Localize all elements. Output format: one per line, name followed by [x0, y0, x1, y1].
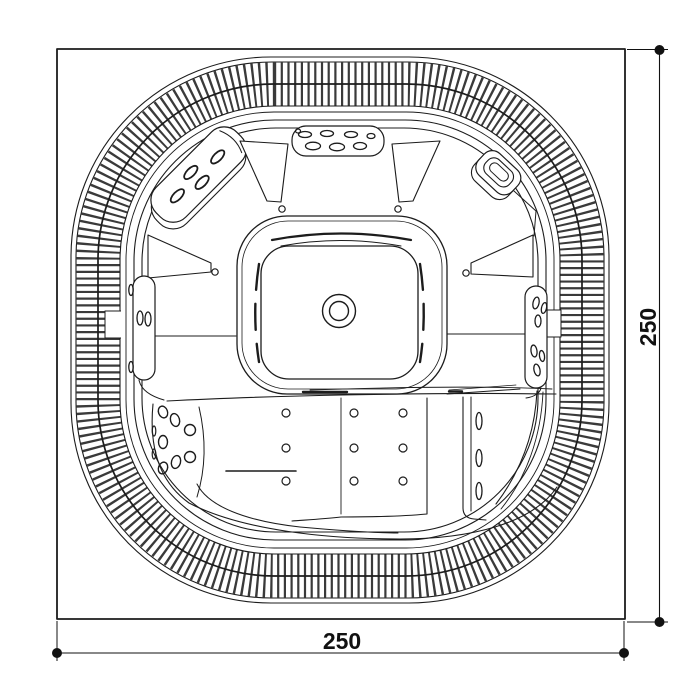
- control-dot: [463, 270, 469, 276]
- seat-wedge: [240, 141, 288, 202]
- screenshot-root: 250 250: [0, 0, 700, 700]
- bench-top-edge: [167, 393, 556, 401]
- bench-front-edge: [152, 404, 557, 539]
- jet-nozzle: [476, 413, 482, 430]
- panel-contour: [526, 388, 541, 398]
- pillow-body: [143, 119, 253, 229]
- seat-contour-lines: [155, 334, 525, 336]
- rim-step-tab: [105, 311, 121, 338]
- bench-step-edge: [197, 484, 398, 533]
- seat-marker-top-left: [240, 141, 288, 212]
- dimension-endpoint-dot: [655, 45, 665, 55]
- seat-marker-right: [463, 235, 533, 277]
- footwell-outer-edge: [237, 216, 447, 394]
- jet-nozzle: [169, 413, 181, 428]
- jet-nozzle: [170, 455, 182, 470]
- seat-wedge: [392, 141, 440, 202]
- seat-wedge: [471, 235, 533, 277]
- dimension-endpoint-dot: [619, 648, 629, 658]
- jet-nozzle: [152, 426, 156, 436]
- suction-hole: [282, 444, 290, 452]
- jet-nozzle: [185, 425, 196, 436]
- drain-outer-ring: [323, 295, 356, 328]
- jet-nozzle: [185, 452, 196, 463]
- dimension-label-right: 250: [635, 308, 661, 346]
- control-dot: [395, 206, 401, 212]
- seat-marker-top-right: [392, 141, 440, 212]
- footwell-floor-edge: [261, 246, 418, 379]
- suction-hole: [282, 409, 290, 417]
- spa-interior: [105, 119, 561, 539]
- jet-panel-body: [133, 276, 155, 380]
- footwell-shade-arc: [272, 234, 411, 241]
- dimension-endpoint-dot: [655, 617, 665, 627]
- suction-hole: [399, 409, 407, 417]
- dimension-endpoint-dot: [52, 648, 62, 658]
- rim-mid-line: [98, 84, 582, 576]
- spa-technical-drawing: 250 250: [0, 0, 700, 700]
- panel-contour: [139, 380, 164, 400]
- jet-panel-body: [525, 286, 547, 388]
- divider-jets: [476, 413, 482, 500]
- jet-nozzle: [159, 436, 168, 449]
- top-jet-panel: [292, 126, 384, 156]
- suction-hole: [282, 477, 290, 485]
- seat-separator: [197, 407, 204, 497]
- rim-hatching: [98, 84, 582, 576]
- jet-panel-body: [292, 126, 384, 156]
- suction-hole: [350, 444, 358, 452]
- pillow-connector-line: [514, 191, 536, 236]
- corner-pillow-right: [466, 146, 525, 204]
- jet-nozzle: [476, 450, 482, 467]
- footwell: [237, 216, 447, 394]
- control-dot: [279, 206, 285, 212]
- suction-hole: [399, 477, 407, 485]
- dimension-right: 250: [627, 45, 668, 627]
- seat-wedge: [148, 235, 211, 278]
- dimension-label-bottom: 250: [323, 628, 361, 654]
- control-dot: [212, 269, 218, 275]
- suction-hole: [350, 477, 358, 485]
- footwell-shade-arc: [281, 241, 401, 247]
- right-jet-panel: [525, 286, 561, 398]
- drain-cap: [330, 302, 349, 321]
- footwell-shade-arc: [255, 264, 259, 362]
- footwell-shade-arc: [420, 264, 424, 362]
- suction-hole: [350, 409, 358, 417]
- seat-back-panel: [292, 398, 427, 521]
- bench-jet-grid: [282, 409, 407, 485]
- seat-marker-left: [148, 235, 218, 278]
- floor-drain: [323, 295, 356, 328]
- jet-nozzle: [157, 405, 170, 419]
- dimension-bottom: 250: [52, 621, 629, 661]
- suction-hole: [399, 444, 407, 452]
- jet-nozzle: [476, 483, 482, 500]
